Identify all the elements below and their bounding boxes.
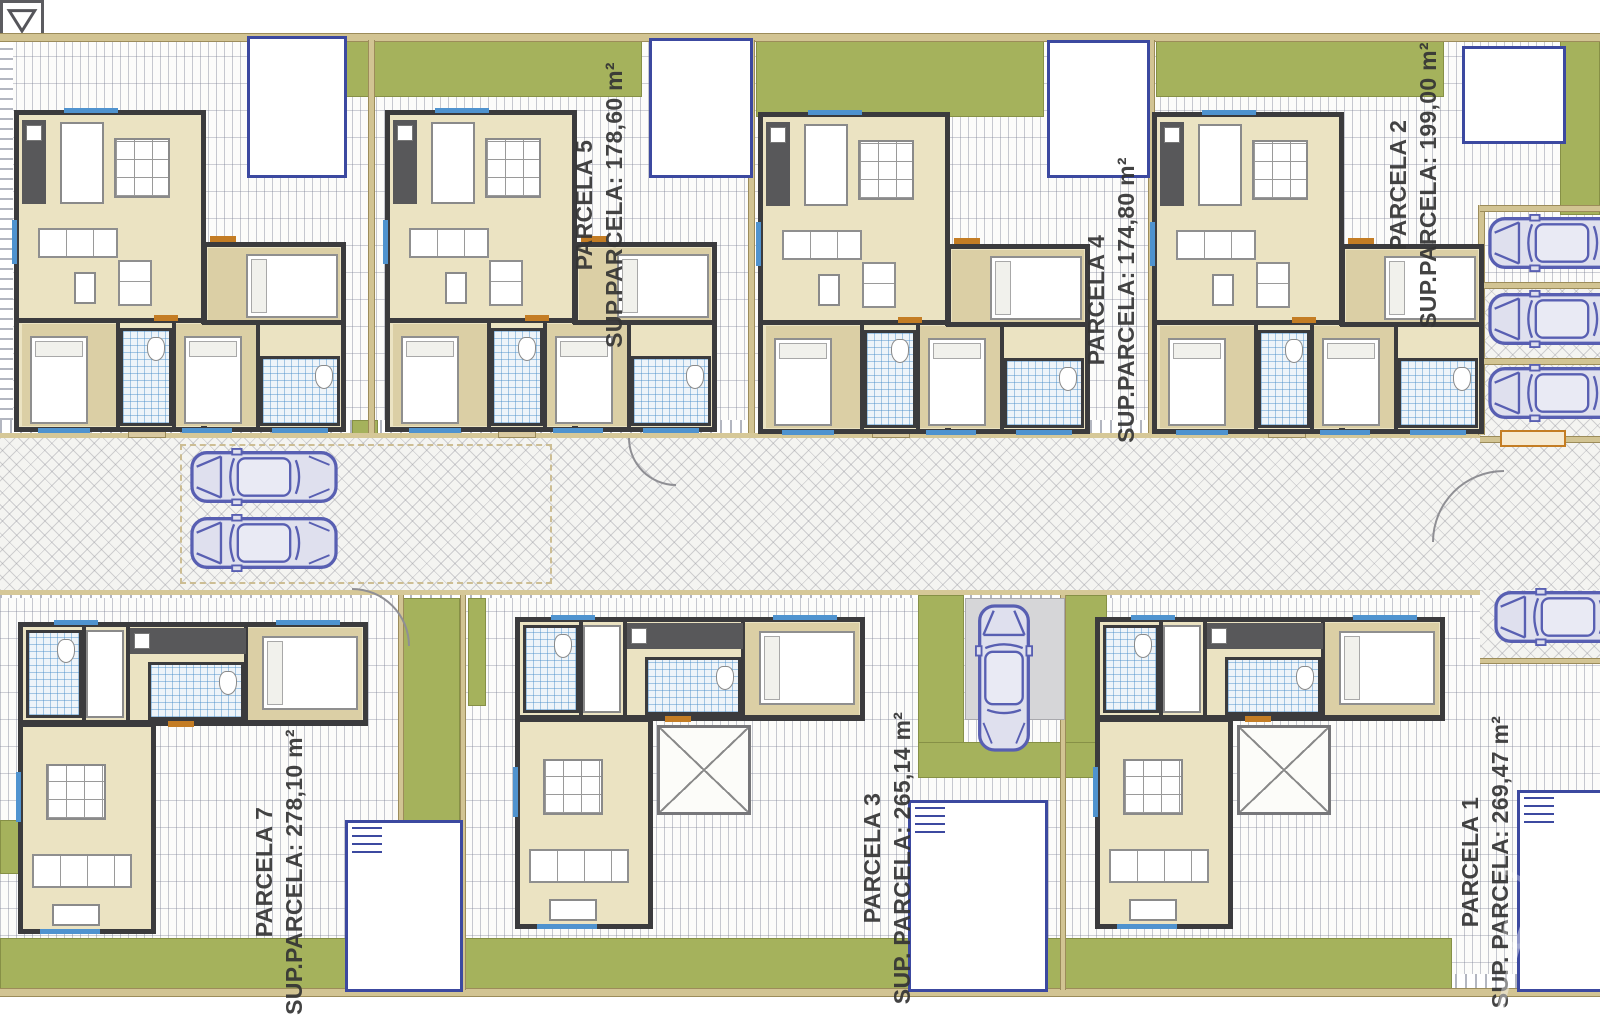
- tv-unit: [445, 272, 467, 304]
- parcel-area: SUP.PARCELA: 174,80 m²: [1112, 157, 1142, 443]
- door: [154, 315, 178, 321]
- villa-floorplan-bottom: [515, 617, 865, 929]
- kitchen-island: [1198, 124, 1242, 206]
- window: [38, 428, 90, 433]
- door: [168, 721, 194, 727]
- door: [954, 238, 980, 244]
- villa-floorplan-bottom: [18, 622, 368, 934]
- bathroom: [1103, 625, 1159, 713]
- dining-table: [114, 138, 170, 198]
- dining-table: [1123, 759, 1183, 815]
- swimming-pool: [908, 800, 1048, 992]
- armchair: [1256, 262, 1290, 308]
- car-topview: [188, 448, 340, 506]
- bed: [401, 336, 459, 424]
- bathroom: [1258, 330, 1310, 428]
- dining-table: [46, 764, 106, 820]
- bed: [1168, 338, 1226, 426]
- plot-boundary-bottom: [0, 988, 1600, 997]
- armchair: [489, 260, 523, 306]
- parcel-name: PARCELA 3: [858, 712, 888, 1004]
- kitchen-island: [804, 124, 848, 206]
- bathroom: [1398, 358, 1478, 428]
- kitchen-island: [60, 122, 104, 204]
- living-kitchen-wing: [1095, 717, 1233, 929]
- kitchen-counter: [393, 120, 417, 204]
- sofa: [1109, 849, 1209, 883]
- parking-bay-separator: [1480, 658, 1600, 664]
- window: [808, 110, 862, 115]
- double-bed: [246, 254, 338, 318]
- patio-void: [657, 725, 751, 815]
- tv-unit: [52, 904, 100, 926]
- window: [272, 428, 328, 433]
- window: [553, 428, 603, 433]
- double-bed: [759, 631, 855, 705]
- site-plan-canvas: PARCELA 5SUP.PARCELA: 178,60 m²PARCELA 4…: [0, 0, 1600, 1024]
- door: [665, 716, 691, 722]
- tv-unit: [818, 274, 840, 306]
- partition-wall: [946, 322, 1090, 327]
- door: [898, 317, 922, 323]
- villa-floorplan-top: [758, 112, 1090, 434]
- window: [1016, 430, 1072, 435]
- villa-floorplan-bottom: [1095, 617, 1445, 929]
- plot-boundary-top: [0, 33, 1600, 42]
- partition-wall: [172, 322, 176, 428]
- window: [409, 428, 461, 433]
- bathroom: [864, 330, 916, 428]
- kitchen-counter: [22, 120, 46, 204]
- kitchen-counter: [1207, 623, 1323, 649]
- partition-wall: [202, 320, 346, 325]
- parcel-area: SUP. PARCELA: 265,14 m²: [888, 712, 918, 1004]
- kitchen-island: [431, 122, 475, 204]
- car-topview: [975, 602, 1033, 754]
- double-bed: [1339, 631, 1435, 705]
- car-topview: [188, 514, 340, 572]
- door: [1292, 317, 1316, 323]
- garden-area: [468, 598, 486, 706]
- door: [1348, 238, 1374, 244]
- garden-area: [756, 40, 1044, 117]
- parcel-label: PARCELA 7SUP.PARCELA: 278,10 m²: [250, 729, 310, 1015]
- window: [1093, 767, 1098, 817]
- kitchen-counter: [130, 628, 246, 654]
- kitchen-counter: [766, 122, 790, 206]
- dining-table: [1252, 140, 1308, 200]
- parcel-area: SUP.PARCELA: 178,60 m²: [600, 62, 630, 348]
- double-bed: [990, 256, 1082, 320]
- bathroom: [148, 662, 244, 720]
- window: [773, 615, 837, 620]
- window: [782, 430, 834, 435]
- sofa: [782, 230, 862, 260]
- window: [1150, 222, 1155, 266]
- bathroom: [26, 630, 82, 718]
- window: [1353, 615, 1417, 620]
- window: [1131, 615, 1175, 620]
- parcel-area: SUP. PARCELA: 269,47 m²: [1486, 716, 1516, 1008]
- double-bed: [617, 254, 709, 318]
- sofa: [529, 849, 629, 883]
- window: [551, 615, 595, 620]
- window: [756, 222, 761, 266]
- parcel-name: PARCELA 4: [1082, 157, 1112, 443]
- bathroom: [1225, 657, 1321, 715]
- swimming-pool: [1517, 790, 1600, 992]
- tv-unit: [74, 272, 96, 304]
- parcel-label: PARCELA 1SUP. PARCELA: 269,47 m²: [1456, 716, 1516, 1008]
- garden-area: [0, 938, 1452, 990]
- window: [276, 620, 340, 625]
- window: [1202, 110, 1256, 115]
- parcel-name: PARCELA 7: [250, 729, 280, 1015]
- window: [435, 108, 489, 113]
- bed: [774, 338, 832, 426]
- closet: [1163, 625, 1201, 713]
- garden-area: [918, 595, 964, 743]
- tv-unit: [549, 899, 597, 921]
- dining-table: [543, 759, 603, 815]
- bathroom: [645, 657, 741, 715]
- armchair: [862, 262, 896, 308]
- double-bed: [262, 636, 358, 710]
- window: [12, 220, 17, 264]
- planter-bench: [1500, 430, 1566, 447]
- bed: [184, 336, 242, 424]
- window: [643, 428, 699, 433]
- villa-floorplan-top: [385, 110, 717, 432]
- kitchen-counter: [1160, 122, 1184, 206]
- door: [1245, 716, 1271, 722]
- sofa: [409, 228, 489, 258]
- bathroom: [260, 356, 340, 426]
- sofa: [38, 228, 118, 258]
- window: [54, 620, 98, 625]
- window: [16, 772, 21, 822]
- armchair: [118, 260, 152, 306]
- car-topview: [1486, 290, 1600, 348]
- parcel-label: PARCELA 5SUP.PARCELA: 178,60 m²: [570, 62, 630, 348]
- sofa: [32, 854, 132, 888]
- parcel-area: SUP.PARCELA: 278,10 m²: [280, 729, 310, 1015]
- window: [182, 428, 232, 433]
- garden-area: [1560, 40, 1600, 215]
- bathroom: [631, 356, 711, 426]
- window: [40, 929, 100, 934]
- parcel-name: PARCELA 2: [1384, 42, 1414, 328]
- parcel-label: PARCELA 4SUP.PARCELA: 174,80 m²: [1082, 157, 1142, 443]
- window: [64, 108, 118, 113]
- window: [513, 767, 518, 817]
- dining-table: [485, 138, 541, 198]
- window: [926, 430, 976, 435]
- parcel-divider: [368, 40, 375, 433]
- bathroom: [1004, 358, 1084, 428]
- kitchen-counter: [627, 623, 743, 649]
- bed: [30, 336, 88, 424]
- partition-wall: [916, 324, 920, 430]
- bed: [928, 338, 986, 426]
- parking-bay-separator: [1480, 282, 1600, 289]
- living-kitchen-wing: [18, 722, 156, 934]
- partition-wall: [1310, 324, 1314, 430]
- window: [537, 924, 597, 929]
- car-topview: [1486, 364, 1600, 422]
- bed: [555, 336, 613, 424]
- pool-steps: [1524, 797, 1554, 823]
- bathroom: [120, 328, 172, 426]
- parking-bay-separator: [1480, 205, 1600, 212]
- parcel-label: PARCELA 2SUP.PARCELA: 199,00 m²: [1384, 42, 1444, 328]
- door: [210, 236, 236, 242]
- bathroom: [523, 625, 579, 713]
- patio-void: [1237, 725, 1331, 815]
- window: [1410, 430, 1466, 435]
- partition-wall: [543, 322, 547, 428]
- parcel-name: PARCELA 1: [1456, 716, 1486, 1008]
- bathroom: [491, 328, 543, 426]
- living-kitchen-wing: [515, 717, 653, 929]
- car-topview: [1486, 214, 1600, 272]
- window: [1117, 924, 1177, 929]
- bed: [1322, 338, 1380, 426]
- door: [525, 315, 549, 321]
- villa-floorplan-top: [14, 110, 346, 432]
- closet: [583, 625, 621, 713]
- car-topview: [1492, 588, 1600, 646]
- tv-unit: [1129, 899, 1177, 921]
- window: [383, 220, 388, 264]
- tv-unit: [1212, 274, 1234, 306]
- window: [1176, 430, 1228, 435]
- pool-steps: [915, 807, 945, 833]
- parcel-label: PARCELA 3SUP. PARCELA: 265,14 m²: [858, 712, 918, 1004]
- parcel-name: PARCELA 5: [570, 62, 600, 348]
- window: [1320, 430, 1370, 435]
- dining-table: [858, 140, 914, 200]
- sofa: [1176, 230, 1256, 260]
- parcel-area: SUP.PARCELA: 199,00 m²: [1414, 42, 1444, 328]
- closet: [86, 630, 124, 718]
